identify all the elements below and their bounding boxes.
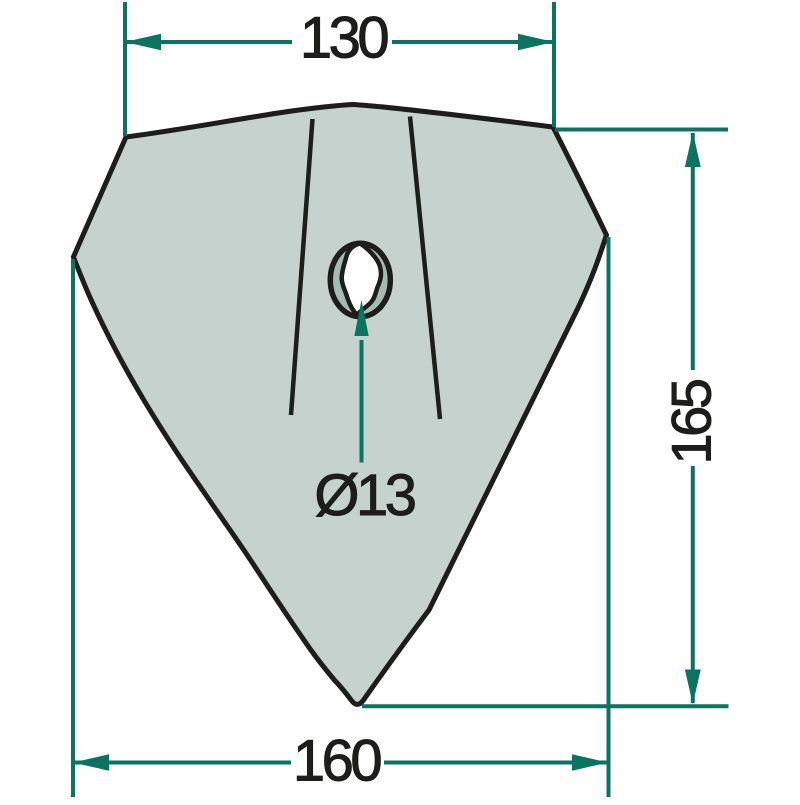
svg-text:160: 160 bbox=[293, 729, 381, 794]
svg-text:130: 130 bbox=[300, 6, 388, 71]
svg-text:165: 165 bbox=[660, 380, 723, 464]
svg-text:Ø13: Ø13 bbox=[314, 463, 414, 528]
